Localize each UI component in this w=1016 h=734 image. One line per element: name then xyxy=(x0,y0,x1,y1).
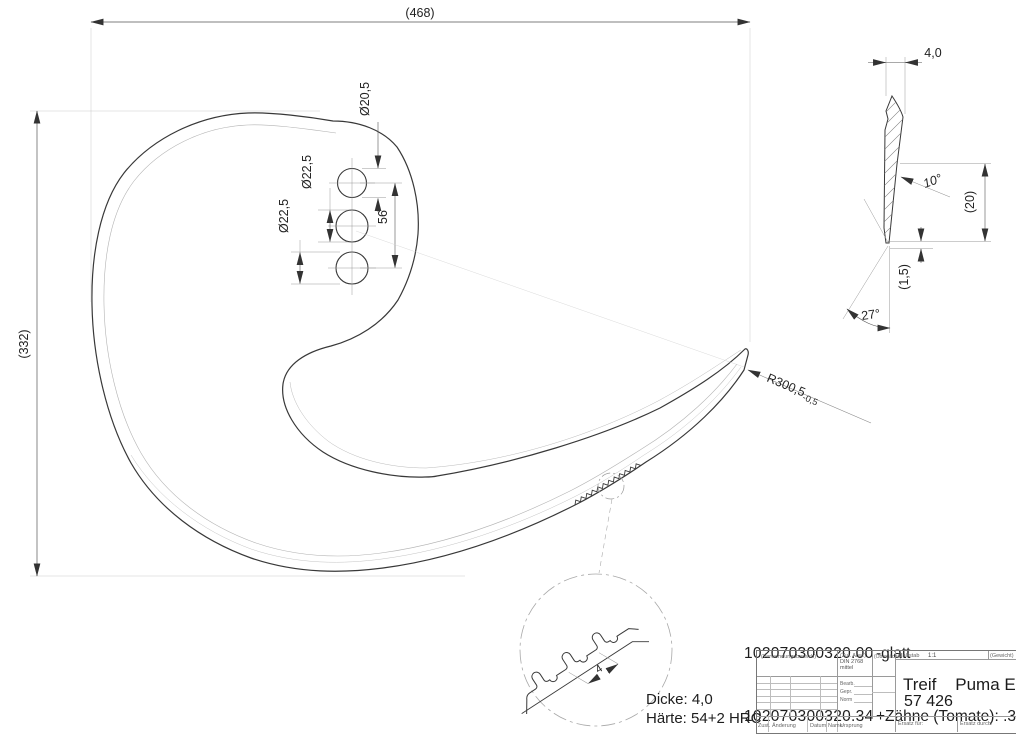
dim-hole-spacing: 56 xyxy=(360,183,402,268)
replacement-for-label: Ersatz für: xyxy=(898,721,923,727)
gepr-label: Gepr. xyxy=(840,689,852,695)
rev-date-label: Datum xyxy=(810,723,826,729)
origin-label: Ursprung xyxy=(840,723,863,729)
blade-outer-contour xyxy=(92,113,748,571)
dim-overall-width: (468) xyxy=(91,6,750,342)
section-profile xyxy=(884,96,903,243)
section-hatching xyxy=(876,74,912,254)
tooth-profile xyxy=(510,612,644,714)
hole-centerlines xyxy=(328,158,376,295)
scale-value: 1:1 xyxy=(928,653,936,659)
dim-section-height: (20) xyxy=(890,164,991,242)
dim-section-thickness: 4,0 xyxy=(868,46,942,114)
dim-label-hole-bottom: Ø22,5 xyxy=(277,199,291,233)
dim-hole-top: Ø20,5 xyxy=(358,82,386,212)
scale-label: Maßstab xyxy=(898,653,919,659)
detail-leader-line xyxy=(599,499,612,573)
notes-block: Dicke: 4,0 Härte: 54+2 HRC xyxy=(646,690,761,728)
dim-tip-angle: 27° xyxy=(843,199,890,333)
dim-label-tip-angle: 27° xyxy=(860,306,881,322)
blade-grind-line-hook xyxy=(290,350,741,468)
dim-hole-middle: Ø22,5 xyxy=(300,155,348,242)
blade-grind-line-back xyxy=(104,125,737,556)
tooth-strip-underside xyxy=(522,634,649,721)
tooth-detail-view: 4 xyxy=(507,611,650,723)
dim-label-edge-land: (1,5) xyxy=(897,264,911,290)
dim-label-overall-height: (332) xyxy=(17,329,31,358)
note-hardness: Härte: 54+2 HRC xyxy=(646,709,761,728)
dim-label-hole-top: Ø20,5 xyxy=(358,82,372,116)
dim-hole-bottom: Ø22,5 xyxy=(277,199,340,284)
rev-state-label: Zust. xyxy=(758,723,770,729)
weight-label: (Gewicht) xyxy=(990,653,1014,659)
dim-label-hole-middle: Ø22,5 xyxy=(300,155,314,189)
replaced-by-label: Ersatz durch: xyxy=(960,721,992,727)
dim-label-tooth-pitch: 4 xyxy=(593,663,605,676)
dim-edge-land: (1,5) xyxy=(890,227,933,290)
product-title: Treif Puma E xyxy=(903,675,1016,695)
rev-change-label: Änderung xyxy=(772,723,796,729)
note-thickness: Dicke: 4,0 xyxy=(646,690,761,709)
tolerance-standard: DIN 2768 mittel xyxy=(840,659,863,671)
dim-label-section-height: (20) xyxy=(963,191,977,213)
cross-section-view: 4,0 10° (20) (1,5) 27° xyxy=(843,46,991,333)
norm-label: Norm xyxy=(840,697,852,703)
blade-grind-line-edge xyxy=(131,367,741,562)
dim-label-edge-radius: R300,5-0,5 xyxy=(764,371,822,408)
drawing-sheet: (468) (332) Ø20,5 Ø22,5 Ø22,5 56 xyxy=(0,0,1016,734)
dim-label-overall-width: (468) xyxy=(405,6,434,20)
detail-marker-circle xyxy=(598,473,624,499)
blade-outline-group xyxy=(92,113,748,571)
bearb-label: Bearb. xyxy=(840,681,855,687)
dim-label-thickness: 4,0 xyxy=(924,46,941,60)
dim-overall-height: (332) xyxy=(17,111,465,576)
title-block: (Verwendungsbereich) (Zul. Abw.) DIN 276… xyxy=(756,650,1016,734)
dim-label-hole-spacing: 56 xyxy=(376,210,390,224)
usage-label: (Verwendungsbereich) xyxy=(761,654,816,660)
dim-label-bevel-angle: 10° xyxy=(921,171,944,191)
drawing-number: 57 426 xyxy=(904,693,953,711)
dim-edge-radius: R300,5-0,5 xyxy=(356,231,871,423)
dim-bevel-angle: 10° xyxy=(901,171,950,197)
